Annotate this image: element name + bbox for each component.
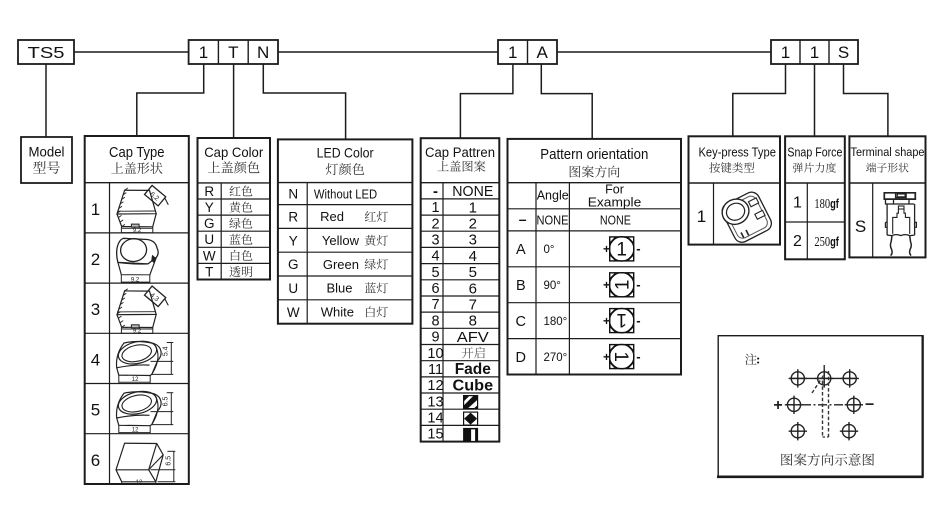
svg-text:6.5: 6.5 bbox=[163, 397, 170, 407]
svg-text:2: 2 bbox=[431, 216, 439, 232]
svg-text:Model: Model bbox=[29, 144, 65, 160]
svg-text:Cap Pattren: Cap Pattren bbox=[425, 145, 495, 160]
svg-text:90°: 90° bbox=[544, 280, 561, 292]
svg-text:Key-press Type: Key-press Type bbox=[698, 144, 776, 159]
svg-text:–: – bbox=[519, 211, 527, 227]
svg-text:180°: 180° bbox=[544, 316, 568, 328]
svg-text:9: 9 bbox=[431, 330, 439, 346]
svg-text:Terminal shape: Terminal shape bbox=[851, 145, 925, 159]
svg-text:Angle: Angle bbox=[537, 189, 569, 203]
svg-text:1: 1 bbox=[91, 200, 100, 219]
svg-text:G: G bbox=[288, 257, 299, 272]
svg-text:4: 4 bbox=[431, 249, 439, 265]
svg-text:2: 2 bbox=[793, 233, 802, 250]
svg-text:Fade: Fade bbox=[455, 361, 492, 378]
svg-text:Blue: Blue bbox=[326, 281, 352, 296]
svg-text:+: + bbox=[603, 314, 610, 328]
svg-text:0°: 0° bbox=[544, 244, 555, 256]
svg-text:AFV: AFV bbox=[457, 329, 489, 346]
svg-text:250gf: 250gf bbox=[814, 234, 839, 249]
svg-text:-: - bbox=[433, 183, 438, 200]
svg-text:1: 1 bbox=[199, 43, 208, 62]
svg-text:1: 1 bbox=[616, 240, 627, 261]
svg-text:G: G bbox=[204, 216, 215, 231]
svg-text:B: B bbox=[516, 278, 526, 294]
svg-text:Example: Example bbox=[588, 195, 642, 209]
svg-text:7: 7 bbox=[469, 296, 477, 313]
svg-text:LED Color: LED Color bbox=[317, 145, 374, 161]
svg-text:1: 1 bbox=[793, 195, 802, 212]
svg-text:N: N bbox=[257, 43, 269, 62]
svg-text:270°: 270° bbox=[544, 352, 568, 364]
svg-text:R: R bbox=[288, 210, 298, 225]
svg-text:N: N bbox=[288, 187, 298, 202]
svg-text:C: C bbox=[516, 314, 526, 330]
svg-text:1: 1 bbox=[610, 351, 631, 362]
svg-text:5.4: 5.4 bbox=[163, 346, 170, 356]
svg-text:4.3: 4.3 bbox=[148, 292, 160, 304]
svg-text:U: U bbox=[204, 232, 214, 247]
svg-text:1: 1 bbox=[431, 200, 439, 216]
svg-text:Cap Type: Cap Type bbox=[109, 145, 165, 161]
svg-text:U: U bbox=[288, 281, 298, 296]
svg-text:180gf: 180gf bbox=[814, 196, 839, 211]
svg-text:6: 6 bbox=[431, 281, 439, 297]
svg-text:White: White bbox=[321, 304, 354, 319]
svg-text:S: S bbox=[838, 43, 849, 62]
svg-text:3: 3 bbox=[469, 232, 477, 249]
svg-text:Green: Green bbox=[323, 257, 359, 272]
svg-text:6.5: 6.5 bbox=[165, 456, 172, 466]
svg-text:W: W bbox=[203, 248, 216, 263]
svg-text:+: + bbox=[603, 278, 610, 292]
svg-text:Without LED: Without LED bbox=[314, 187, 377, 201]
svg-text:14: 14 bbox=[427, 411, 443, 427]
svg-text:6: 6 bbox=[91, 451, 100, 470]
svg-text:Cube: Cube bbox=[453, 377, 494, 394]
svg-text:A: A bbox=[516, 242, 526, 258]
svg-text:NONE: NONE bbox=[600, 212, 631, 227]
svg-text:TS5: TS5 bbox=[28, 45, 65, 62]
svg-text:1: 1 bbox=[810, 43, 819, 62]
svg-text:11: 11 bbox=[428, 362, 443, 378]
svg-text:Y: Y bbox=[205, 200, 214, 215]
svg-text:8: 8 bbox=[469, 313, 477, 330]
svg-text:-: - bbox=[636, 313, 640, 328]
svg-text:+: + bbox=[773, 397, 782, 414]
svg-text:4: 4 bbox=[91, 350, 100, 369]
svg-text:1: 1 bbox=[469, 199, 477, 216]
svg-text:2: 2 bbox=[469, 216, 477, 233]
svg-text:Y: Y bbox=[289, 233, 298, 248]
svg-text:1: 1 bbox=[697, 207, 706, 226]
svg-text:1: 1 bbox=[781, 43, 790, 62]
svg-text:R: R bbox=[204, 184, 214, 199]
svg-text:D: D bbox=[516, 350, 526, 366]
svg-text:1: 1 bbox=[613, 280, 634, 291]
svg-text:W: W bbox=[287, 305, 300, 320]
svg-text:A: A bbox=[537, 43, 549, 62]
svg-text:+: + bbox=[603, 242, 610, 256]
svg-text:10: 10 bbox=[427, 346, 443, 362]
svg-text:9.2: 9.2 bbox=[131, 278, 140, 284]
svg-text:3: 3 bbox=[431, 233, 439, 249]
svg-text:NONE: NONE bbox=[537, 212, 569, 227]
svg-text:+: + bbox=[603, 350, 610, 364]
svg-text:7: 7 bbox=[431, 297, 439, 313]
svg-text:-: - bbox=[636, 277, 640, 292]
svg-text:4: 4 bbox=[469, 248, 477, 265]
svg-text:T: T bbox=[205, 264, 213, 279]
svg-text:-: - bbox=[636, 349, 640, 364]
svg-text:1: 1 bbox=[616, 309, 627, 330]
svg-text:-: - bbox=[636, 241, 640, 256]
svg-text:3: 3 bbox=[91, 300, 100, 319]
svg-text:Red: Red bbox=[320, 209, 344, 224]
svg-text:5: 5 bbox=[431, 265, 439, 281]
svg-text:1: 1 bbox=[508, 43, 517, 62]
svg-text:Snap Force: Snap Force bbox=[787, 144, 842, 159]
svg-text:Pattern orientation: Pattern orientation bbox=[540, 147, 648, 163]
svg-text:Yellow: Yellow bbox=[322, 233, 360, 248]
svg-text:T: T bbox=[228, 43, 238, 62]
svg-text:6: 6 bbox=[469, 280, 477, 297]
svg-text:5: 5 bbox=[91, 401, 100, 420]
svg-text:8: 8 bbox=[431, 313, 439, 329]
svg-text:6.2: 6.2 bbox=[148, 191, 160, 203]
svg-text:12: 12 bbox=[427, 378, 443, 394]
svg-text:Cap Color: Cap Color bbox=[204, 144, 263, 160]
svg-text:5: 5 bbox=[469, 264, 477, 281]
svg-text:NONE: NONE bbox=[452, 183, 493, 200]
svg-text:−: − bbox=[865, 397, 874, 414]
svg-text:S: S bbox=[855, 217, 866, 236]
svg-text:2: 2 bbox=[91, 250, 100, 269]
svg-text:12: 12 bbox=[136, 480, 143, 486]
svg-text::: : bbox=[756, 351, 760, 366]
svg-text:15: 15 bbox=[427, 427, 443, 443]
svg-text:13: 13 bbox=[427, 394, 443, 410]
